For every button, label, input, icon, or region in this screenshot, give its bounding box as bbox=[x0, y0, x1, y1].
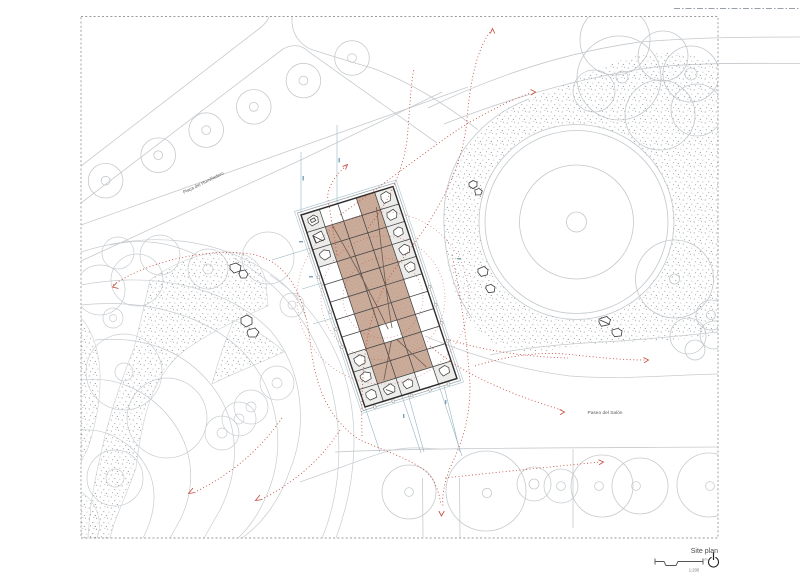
svg-text:1:200: 1:200 bbox=[689, 568, 700, 573]
svg-text:Paseo del Salón: Paseo del Salón bbox=[588, 410, 623, 416]
svg-text:m: m bbox=[705, 558, 708, 562]
